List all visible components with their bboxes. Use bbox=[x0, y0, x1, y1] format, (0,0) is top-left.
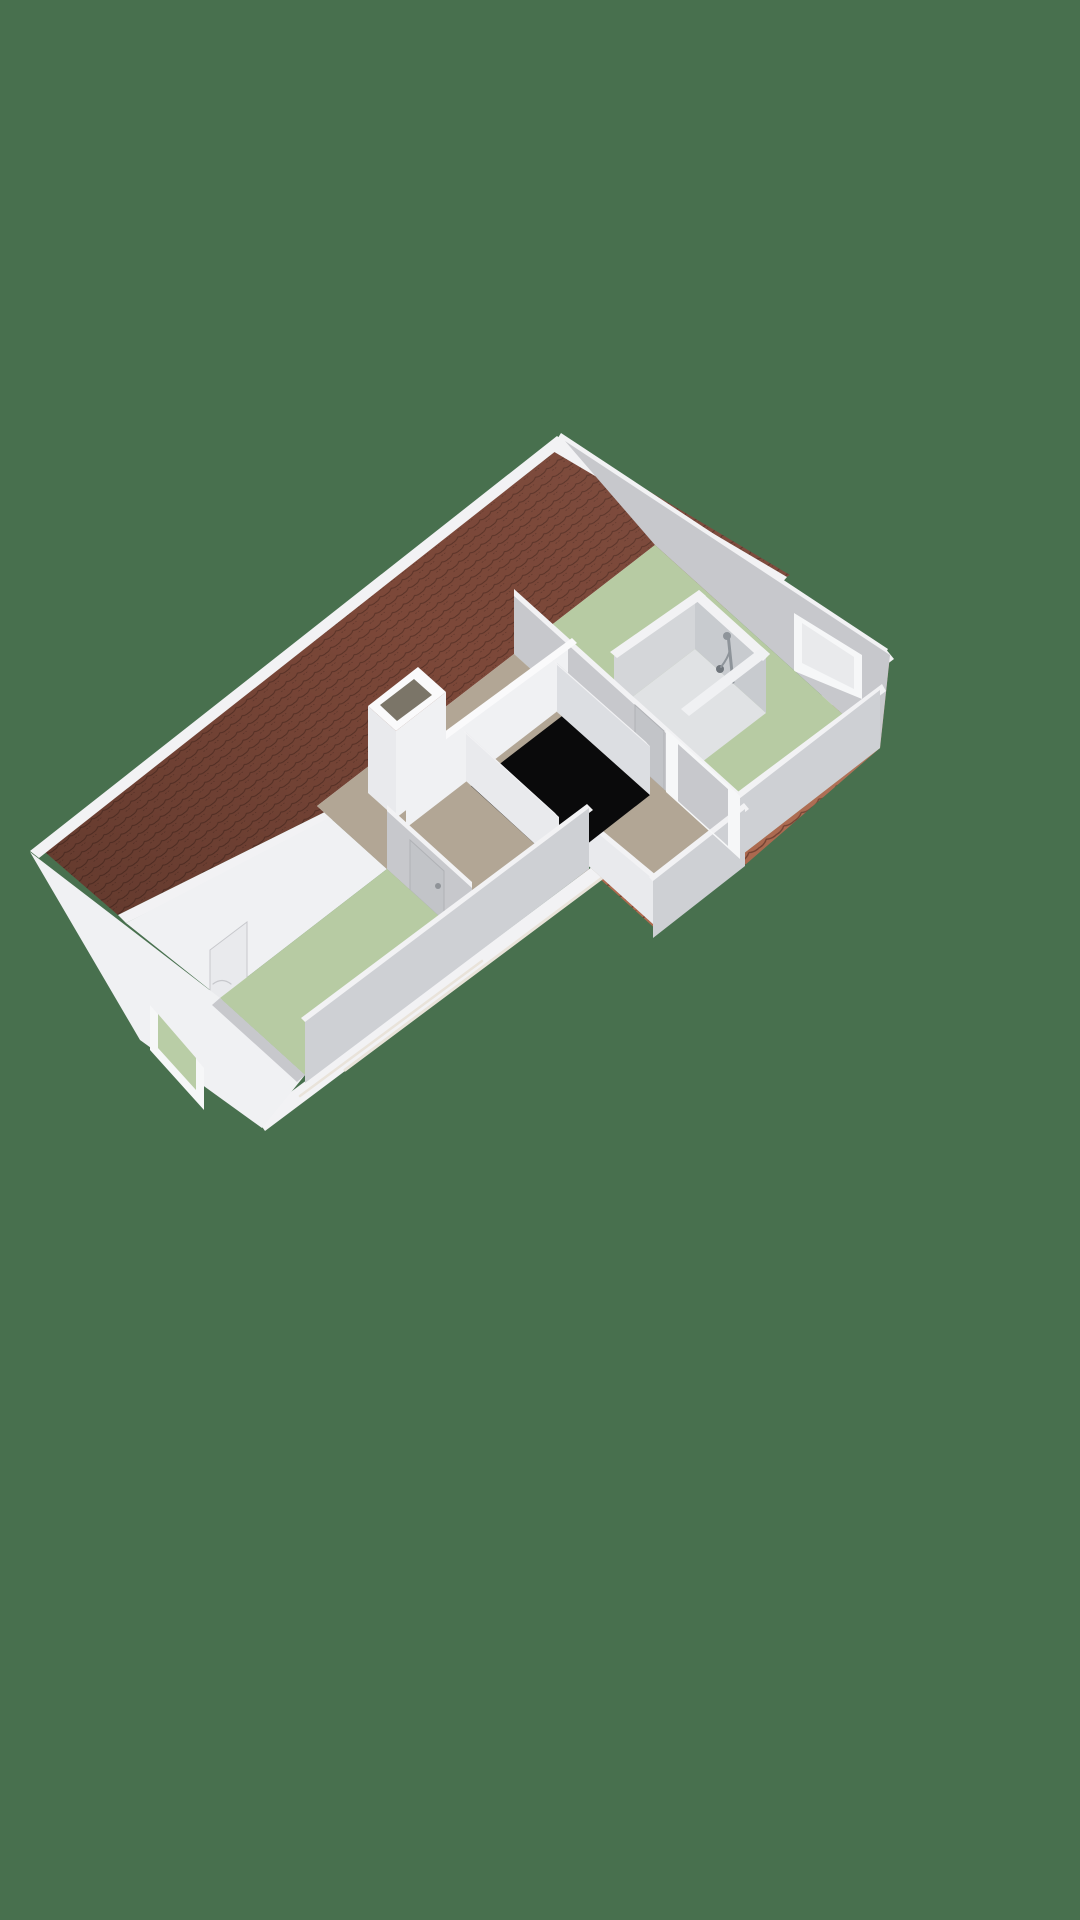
floorplan-3d-scene bbox=[0, 0, 1080, 1920]
door-bedroom-southwest-handle bbox=[435, 883, 441, 889]
shower-head bbox=[723, 632, 731, 640]
floorplan-3d-render bbox=[0, 0, 1080, 1920]
